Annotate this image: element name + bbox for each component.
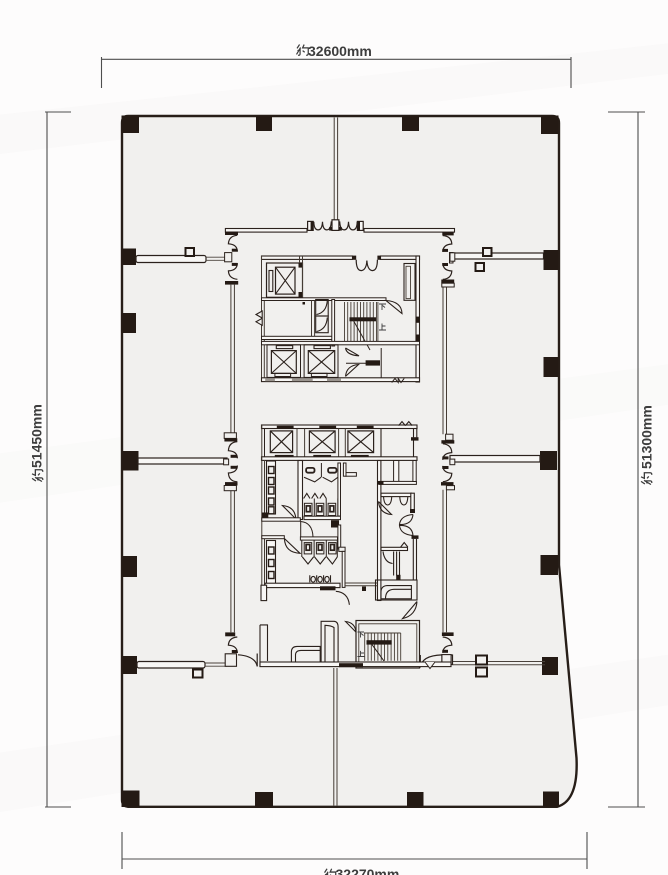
svg-text:32270mm: 32270mm (336, 866, 400, 875)
svg-text:51300mm: 51300mm (639, 405, 655, 469)
svg-text:51450mm: 51450mm (29, 404, 45, 468)
svg-text:32600mm: 32600mm (308, 43, 372, 59)
